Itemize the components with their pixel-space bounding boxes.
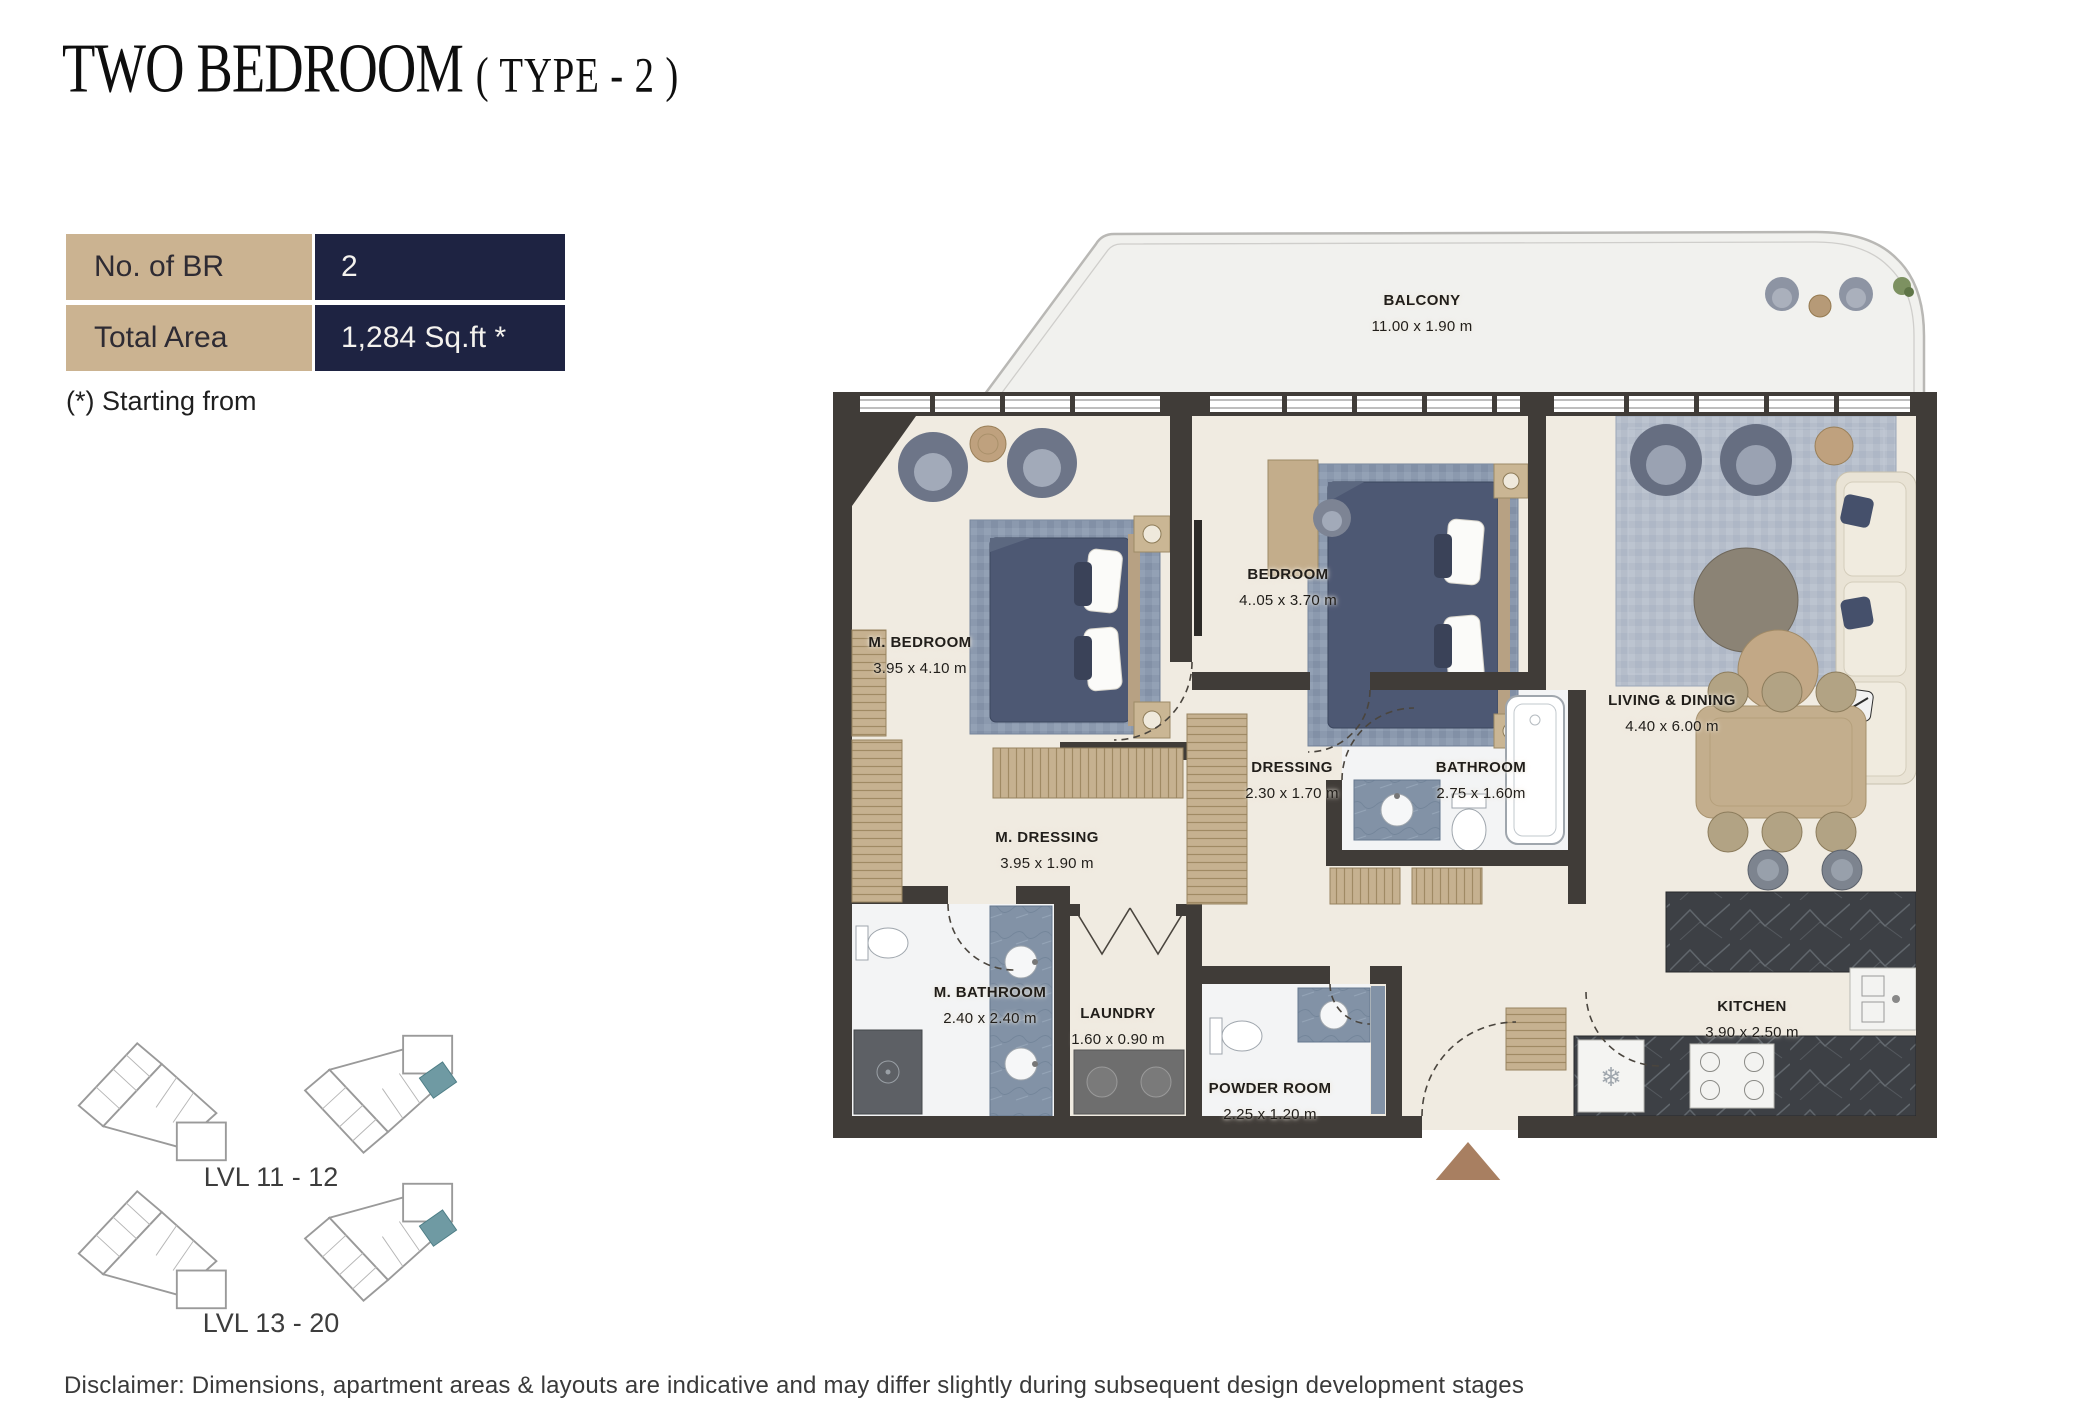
room-label-kitchen: KITCHEN3.90 x 2.50 m	[1705, 994, 1799, 1047]
info-row-br-label: No. of BR	[66, 234, 312, 300]
page-title-main: TWO BEDROOM	[62, 31, 463, 107]
room-label-powder-room: POWDER ROOM2.25 x 1.20 m	[1209, 1076, 1332, 1129]
room-label-bedroom: BEDROOM4..05 x 3.70 m	[1239, 562, 1337, 615]
entrance-arrow	[1434, 1142, 1502, 1180]
keyplan-lvl-11-12	[58, 1032, 488, 1164]
keyplan-label-2: LVL 13 - 20	[56, 1308, 486, 1339]
windows	[860, 396, 1910, 412]
room-label-laundry: LAUNDRY1.60 x 0.90 m	[1071, 1001, 1165, 1054]
room-label-balcony: BALCONY11.00 x 1.90 m	[1372, 288, 1473, 341]
info-row-area-label: Total Area	[66, 305, 312, 371]
info-row-area-value: 1,284 Sq.ft *	[315, 305, 565, 371]
entry-cabinet	[1506, 1008, 1566, 1070]
starting-from-note: (*) Starting from	[66, 386, 257, 417]
info-row-br-value: 2	[315, 234, 565, 300]
page-title: TWO BEDROOM ( TYPE - 2 )	[62, 30, 679, 110]
room-label-bathroom: BATHROOM2.75 x 1.60m	[1436, 755, 1526, 808]
powder-tile-wall	[1371, 986, 1385, 1114]
disclaimer-text: Disclaimer: Dimensions, apartment areas …	[64, 1372, 1524, 1400]
room-label-master-bedroom: M. BEDROOM3.95 x 4.10 m	[868, 630, 971, 683]
floor-plan-page: TWO BEDROOM ( TYPE - 2 ) No. of BR 2 Tot…	[0, 0, 2074, 1422]
room-label-dressing: DRESSING2.30 x 1.70 m	[1245, 755, 1339, 808]
info-table: No. of BR 2 Total Area 1,284 Sq.ft *	[66, 234, 565, 371]
fridge-snowflake-icon: ❄	[1600, 1062, 1622, 1092]
room-label-master-dressing: M. DRESSING3.95 x 1.90 m	[995, 825, 1099, 878]
room-label-living-dining: LIVING & DINING4.40 x 6.00 m	[1608, 688, 1736, 741]
keyplan-lvl-13-20	[58, 1180, 488, 1312]
room-label-master-bathroom: M. BATHROOM2.40 x 2.40 m	[934, 980, 1046, 1033]
page-title-sub: ( TYPE - 2 )	[476, 48, 679, 103]
